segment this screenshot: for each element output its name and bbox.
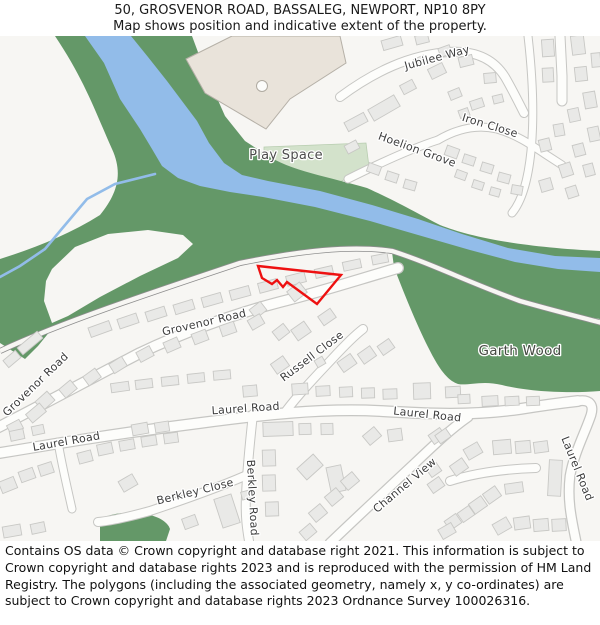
building (135, 378, 153, 389)
building (591, 53, 600, 68)
label-play-space: Play Space (249, 148, 323, 163)
building (542, 68, 554, 83)
building (213, 370, 231, 380)
building (163, 432, 178, 444)
building (262, 450, 276, 466)
building (316, 386, 331, 397)
building (504, 482, 523, 494)
building (383, 389, 397, 399)
map-description: Map shows position and indicative extent… (0, 19, 600, 35)
building (553, 123, 565, 137)
building (413, 383, 431, 400)
building (505, 396, 519, 406)
building (161, 376, 179, 387)
building (541, 39, 554, 57)
building (583, 91, 598, 109)
building (187, 373, 205, 384)
building (299, 423, 311, 434)
building (458, 394, 470, 404)
building (570, 36, 585, 55)
building (552, 519, 567, 532)
map-header: 50, GROSVENOR ROAD, BASSALEG, NEWPORT, N… (0, 0, 600, 36)
building (513, 516, 531, 530)
building (548, 460, 563, 497)
footer-copyright: Contains OS data © Crown copyright and d… (0, 541, 600, 610)
building (141, 435, 157, 447)
label-garth-wood: Garth Wood (478, 343, 561, 359)
building (574, 66, 587, 81)
building (292, 383, 309, 395)
building (321, 423, 333, 434)
building (31, 424, 45, 435)
building (243, 385, 258, 397)
building (511, 185, 523, 196)
building (361, 388, 374, 398)
building-feature-circle (257, 81, 268, 92)
building (533, 518, 549, 531)
building (110, 381, 129, 392)
building (154, 421, 169, 433)
map-footer: Contains OS data © Crown copyright and d… (0, 541, 600, 625)
building (482, 396, 499, 407)
building (339, 387, 353, 398)
building (263, 421, 293, 436)
building (492, 439, 511, 455)
building (265, 502, 278, 516)
property-map: Jubilee Way Iron Close Hoelion Grove Pla… (0, 36, 600, 541)
building (262, 475, 276, 491)
building (119, 439, 136, 451)
building (539, 178, 554, 193)
building (484, 72, 497, 83)
building (515, 440, 531, 453)
map-container: Jubilee Way Iron Close Hoelion Grove Pla… (0, 36, 600, 541)
building (492, 94, 504, 104)
building (538, 138, 552, 152)
building (131, 422, 149, 436)
building (567, 107, 580, 122)
building (526, 396, 539, 406)
building (533, 441, 548, 454)
property-address-title: 50, GROSVENOR ROAD, BASSALEG, NEWPORT, N… (0, 0, 600, 19)
building (387, 428, 403, 442)
